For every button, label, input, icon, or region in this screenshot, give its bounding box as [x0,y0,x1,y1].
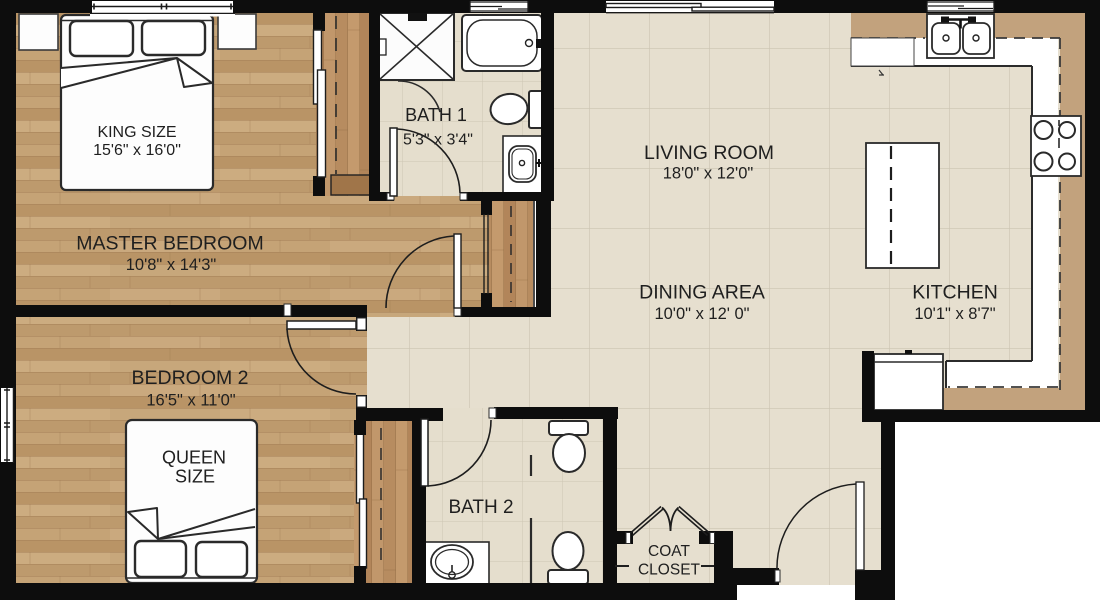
svg-text:10'0" x 12' 0": 10'0" x 12' 0" [654,305,749,323]
svg-text:5'3" x 3'4": 5'3" x 3'4" [403,132,473,149]
svg-text:QUEEN: QUEEN [162,448,226,468]
svg-text:18'0" x 12'0": 18'0" x 12'0" [663,165,754,183]
svg-text:BEDROOM 2: BEDROOM 2 [131,367,248,389]
svg-text:COAT: COAT [648,543,690,560]
svg-text:SIZE: SIZE [175,467,215,487]
svg-text:KITCHEN: KITCHEN [912,282,998,304]
svg-text:DINING AREA: DINING AREA [639,282,765,304]
svg-text:MASTER BEDROOM: MASTER BEDROOM [76,233,263,255]
svg-text:KING SIZE: KING SIZE [97,124,176,141]
svg-text:CLOSET: CLOSET [638,562,701,579]
svg-text:16'5" x 11'0": 16'5" x 11'0" [146,392,235,410]
svg-text:10'1" x 8'7": 10'1" x 8'7" [914,305,995,323]
svg-text:15'6" x 16'0": 15'6" x 16'0" [93,142,181,159]
svg-text:10'8" x 14'3": 10'8" x 14'3" [126,256,217,274]
svg-text:BATH 1: BATH 1 [405,105,467,125]
svg-text:BATH 2: BATH 2 [448,497,513,518]
svg-text:LIVING ROOM: LIVING ROOM [644,142,774,164]
